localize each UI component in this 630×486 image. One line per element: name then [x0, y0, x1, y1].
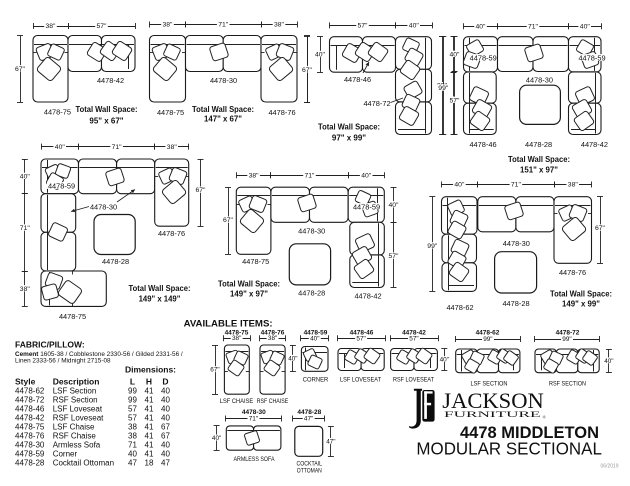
svg-text:Dimensions:: Dimensions: [125, 365, 176, 375]
svg-text:LSF CHAISE: LSF CHAISE [220, 398, 254, 405]
svg-text:4478-30: 4478-30 [503, 239, 530, 248]
svg-text:41: 41 [145, 386, 154, 395]
svg-text:4478-76: 4478-76 [158, 229, 185, 238]
svg-text:38": 38" [232, 335, 241, 342]
svg-text:40: 40 [161, 440, 170, 449]
svg-text:67": 67" [223, 217, 234, 224]
svg-text:57": 57" [389, 253, 400, 260]
svg-text:38: 38 [128, 431, 137, 440]
svg-text:97" x 99": 97" x 99" [332, 134, 366, 143]
svg-text:40": 40" [288, 355, 297, 362]
svg-text:D: D [162, 376, 168, 386]
svg-text:4478-42: 4478-42 [581, 140, 608, 149]
svg-text:4478-75: 4478-75 [15, 422, 45, 431]
svg-text:RSF Loveseat: RSF Loveseat [53, 413, 104, 422]
svg-text:4478-72: 4478-72 [15, 395, 45, 404]
svg-text:67: 67 [161, 422, 170, 431]
svg-text:4478-59: 4478-59 [578, 53, 605, 62]
svg-text:4478-62: 4478-62 [15, 386, 45, 395]
svg-text:40: 40 [161, 395, 170, 404]
svg-text:Armless Sofa: Armless Sofa [53, 440, 101, 449]
svg-text:4478-75: 4478-75 [44, 108, 71, 117]
svg-text:RSF SECTION: RSF SECTION [549, 380, 586, 387]
svg-text:4478-30: 4478-30 [526, 76, 553, 85]
svg-text:L: L [130, 376, 135, 386]
svg-text:4478-75: 4478-75 [242, 257, 269, 266]
svg-text:38": 38" [20, 286, 31, 293]
svg-text:Style: Style [15, 376, 36, 386]
svg-text:99": 99" [562, 336, 571, 343]
svg-text:40": 40" [20, 174, 31, 181]
svg-text:4478-28: 4478-28 [298, 288, 325, 297]
svg-text:40": 40" [476, 24, 487, 31]
svg-text:99": 99" [427, 243, 438, 250]
svg-text:4478-28: 4478-28 [525, 140, 552, 149]
svg-text:LSF SECTION: LSF SECTION [471, 380, 508, 387]
svg-text:4478-46: 4478-46 [15, 404, 45, 413]
svg-text:71: 71 [128, 440, 137, 449]
svg-text:Total Wall Space:: Total Wall Space: [318, 123, 380, 132]
svg-text:40: 40 [161, 449, 170, 458]
svg-text:67": 67" [196, 187, 207, 194]
svg-text:41: 41 [145, 440, 154, 449]
svg-text:4478-28: 4478-28 [15, 458, 45, 467]
svg-text:RSF CHAISE: RSF CHAISE [257, 398, 289, 405]
svg-text:18: 18 [145, 458, 154, 467]
svg-text:LSF LOVESEAT: LSF LOVESEAT [340, 376, 381, 383]
svg-text:Total Wall Space:: Total Wall Space: [550, 290, 612, 299]
svg-text:LSF Section: LSF Section [53, 386, 97, 395]
svg-text:4478-30: 4478-30 [90, 202, 117, 211]
svg-text:4478-59: 4478-59 [353, 202, 380, 211]
svg-text:MODULAR SECTIONAL: MODULAR SECTIONAL [416, 439, 602, 459]
svg-text:95" x 67": 95" x 67" [89, 116, 123, 125]
svg-text:40": 40" [315, 52, 326, 59]
svg-text:Cocktail Ottoman: Cocktail Ottoman [53, 458, 114, 467]
svg-text:38": 38" [249, 173, 260, 180]
svg-text:40": 40" [310, 335, 319, 342]
svg-text:FABRIC/PILLOW:: FABRIC/PILLOW: [15, 340, 85, 350]
svg-text:LSF Chaise: LSF Chaise [53, 422, 95, 431]
svg-text:57: 57 [128, 404, 137, 413]
svg-text:4478-42: 4478-42 [354, 292, 381, 301]
svg-text:4478-59: 4478-59 [470, 53, 497, 62]
svg-text:4478-62: 4478-62 [446, 303, 473, 312]
svg-text:99: 99 [128, 395, 137, 404]
svg-text:4478-28: 4478-28 [502, 299, 529, 308]
svg-text:40": 40" [409, 23, 420, 30]
svg-text:57": 57" [450, 98, 461, 105]
svg-text:71": 71" [249, 416, 258, 423]
svg-text:57: 57 [128, 413, 137, 422]
svg-text:41: 41 [145, 431, 154, 440]
svg-text:AVAILABLE ITEMS:: AVAILABLE ITEMS: [184, 319, 273, 329]
svg-text:LSF Loveseat: LSF Loveseat [53, 404, 103, 413]
svg-text:RSF Chaise: RSF Chaise [53, 431, 97, 440]
svg-text:OTTOMAN: OTTOMAN [297, 468, 322, 475]
svg-text:40": 40" [55, 144, 66, 151]
svg-text:40": 40" [454, 182, 465, 189]
svg-text:71": 71" [218, 22, 229, 29]
svg-text:40": 40" [440, 357, 449, 364]
svg-text:38": 38" [274, 22, 285, 29]
svg-text:41: 41 [145, 449, 154, 458]
svg-text:38": 38" [46, 23, 57, 30]
svg-text:41: 41 [145, 404, 154, 413]
svg-text:RSF Section: RSF Section [53, 395, 98, 404]
svg-text:4478-72: 4478-72 [363, 99, 390, 108]
svg-text:151" x 97": 151" x 97" [520, 166, 558, 175]
svg-text:67: 67 [161, 431, 170, 440]
svg-text:40": 40" [389, 202, 400, 209]
svg-text:Total Wall Space:: Total Wall Space: [508, 155, 570, 164]
svg-text:40": 40" [450, 52, 461, 59]
svg-text:57": 57" [356, 335, 365, 342]
svg-text:38: 38 [128, 422, 137, 431]
svg-text:67": 67" [595, 225, 606, 232]
svg-text:4478-46: 4478-46 [344, 75, 371, 84]
svg-text:57": 57" [97, 23, 108, 30]
svg-text:4478-59: 4478-59 [48, 181, 75, 190]
svg-text:57": 57" [358, 23, 369, 30]
svg-text:COCKTAIL: COCKTAIL [297, 461, 323, 468]
svg-text:71": 71" [112, 144, 123, 151]
svg-text:57": 57" [409, 335, 418, 342]
svg-text:Total Wall Space:: Total Wall Space: [76, 105, 138, 114]
svg-text:67": 67" [15, 66, 26, 73]
svg-text:41: 41 [145, 422, 154, 431]
svg-text:4478-76: 4478-76 [559, 268, 586, 277]
svg-text:Total Wall Space:: Total Wall Space: [129, 284, 191, 293]
svg-text:4478-76: 4478-76 [15, 431, 45, 440]
svg-text:FURNITURE: FURNITURE [444, 410, 541, 419]
svg-text:40": 40" [361, 173, 372, 180]
svg-text:CORNER: CORNER [303, 376, 329, 383]
svg-text:40": 40" [604, 358, 613, 365]
svg-text:4478-30: 4478-30 [210, 76, 237, 85]
svg-text:71": 71" [305, 173, 316, 180]
svg-text:06/2019: 06/2019 [601, 464, 619, 470]
svg-text:67": 67" [302, 67, 313, 74]
svg-text:149" x 99": 149" x 99" [562, 300, 600, 309]
svg-text:4478-59: 4478-59 [15, 449, 45, 458]
svg-text:147" x 67": 147" x 67" [204, 115, 242, 124]
svg-text:4478-76: 4478-76 [268, 108, 295, 117]
svg-text:H: H [146, 376, 152, 386]
svg-text:4478-28: 4478-28 [102, 257, 129, 266]
svg-text:67": 67" [210, 367, 219, 374]
svg-text:Total Wall Space:: Total Wall Space: [192, 105, 254, 114]
svg-text:38": 38" [568, 182, 579, 189]
svg-text:71": 71" [511, 182, 522, 189]
svg-text:40: 40 [161, 386, 170, 395]
svg-text:®: ® [543, 415, 547, 420]
svg-text:38": 38" [268, 335, 277, 342]
svg-text:Corner: Corner [53, 449, 78, 458]
svg-text:4478-30: 4478-30 [298, 227, 325, 236]
svg-text:4478-75: 4478-75 [157, 108, 184, 117]
svg-text:41: 41 [145, 395, 154, 404]
svg-text:47: 47 [128, 458, 137, 467]
svg-text:4478-75: 4478-75 [59, 312, 86, 321]
svg-text:RSF LOVESEAT: RSF LOVESEAT [393, 376, 434, 383]
svg-text:149" x 149": 149" x 149" [139, 295, 181, 304]
svg-text:99": 99" [483, 336, 492, 343]
svg-text:4478-42: 4478-42 [97, 76, 124, 85]
svg-text:ARMLESS SOFA: ARMLESS SOFA [234, 456, 275, 463]
svg-text:Description: Description [53, 376, 100, 386]
svg-text:47: 47 [161, 458, 170, 467]
svg-text:40: 40 [128, 449, 137, 458]
svg-text:41: 41 [145, 413, 154, 422]
svg-text:Total Wall Space:: Total Wall Space: [218, 280, 280, 289]
svg-text:Linen 2333-56 / Midnight 2715-: Linen 2333-56 / Midnight 2715-08 [15, 357, 111, 364]
svg-text:99: 99 [128, 386, 137, 395]
svg-text:149" x 97": 149" x 97" [230, 290, 268, 299]
svg-text:47": 47" [304, 416, 313, 423]
svg-text:4478-42: 4478-42 [15, 413, 45, 422]
svg-text:4478-46: 4478-46 [469, 140, 496, 149]
svg-text:40: 40 [161, 404, 170, 413]
svg-text:40": 40" [580, 24, 591, 31]
svg-text:71": 71" [528, 24, 539, 31]
svg-text:40: 40 [161, 413, 170, 422]
svg-text:47": 47" [326, 438, 335, 445]
svg-text:4478-30: 4478-30 [15, 440, 45, 449]
svg-text:99": 99" [438, 85, 449, 92]
svg-text:40": 40" [212, 435, 221, 442]
svg-text:71": 71" [20, 225, 31, 232]
svg-text:38": 38" [163, 22, 174, 29]
svg-text:38": 38" [167, 144, 178, 151]
